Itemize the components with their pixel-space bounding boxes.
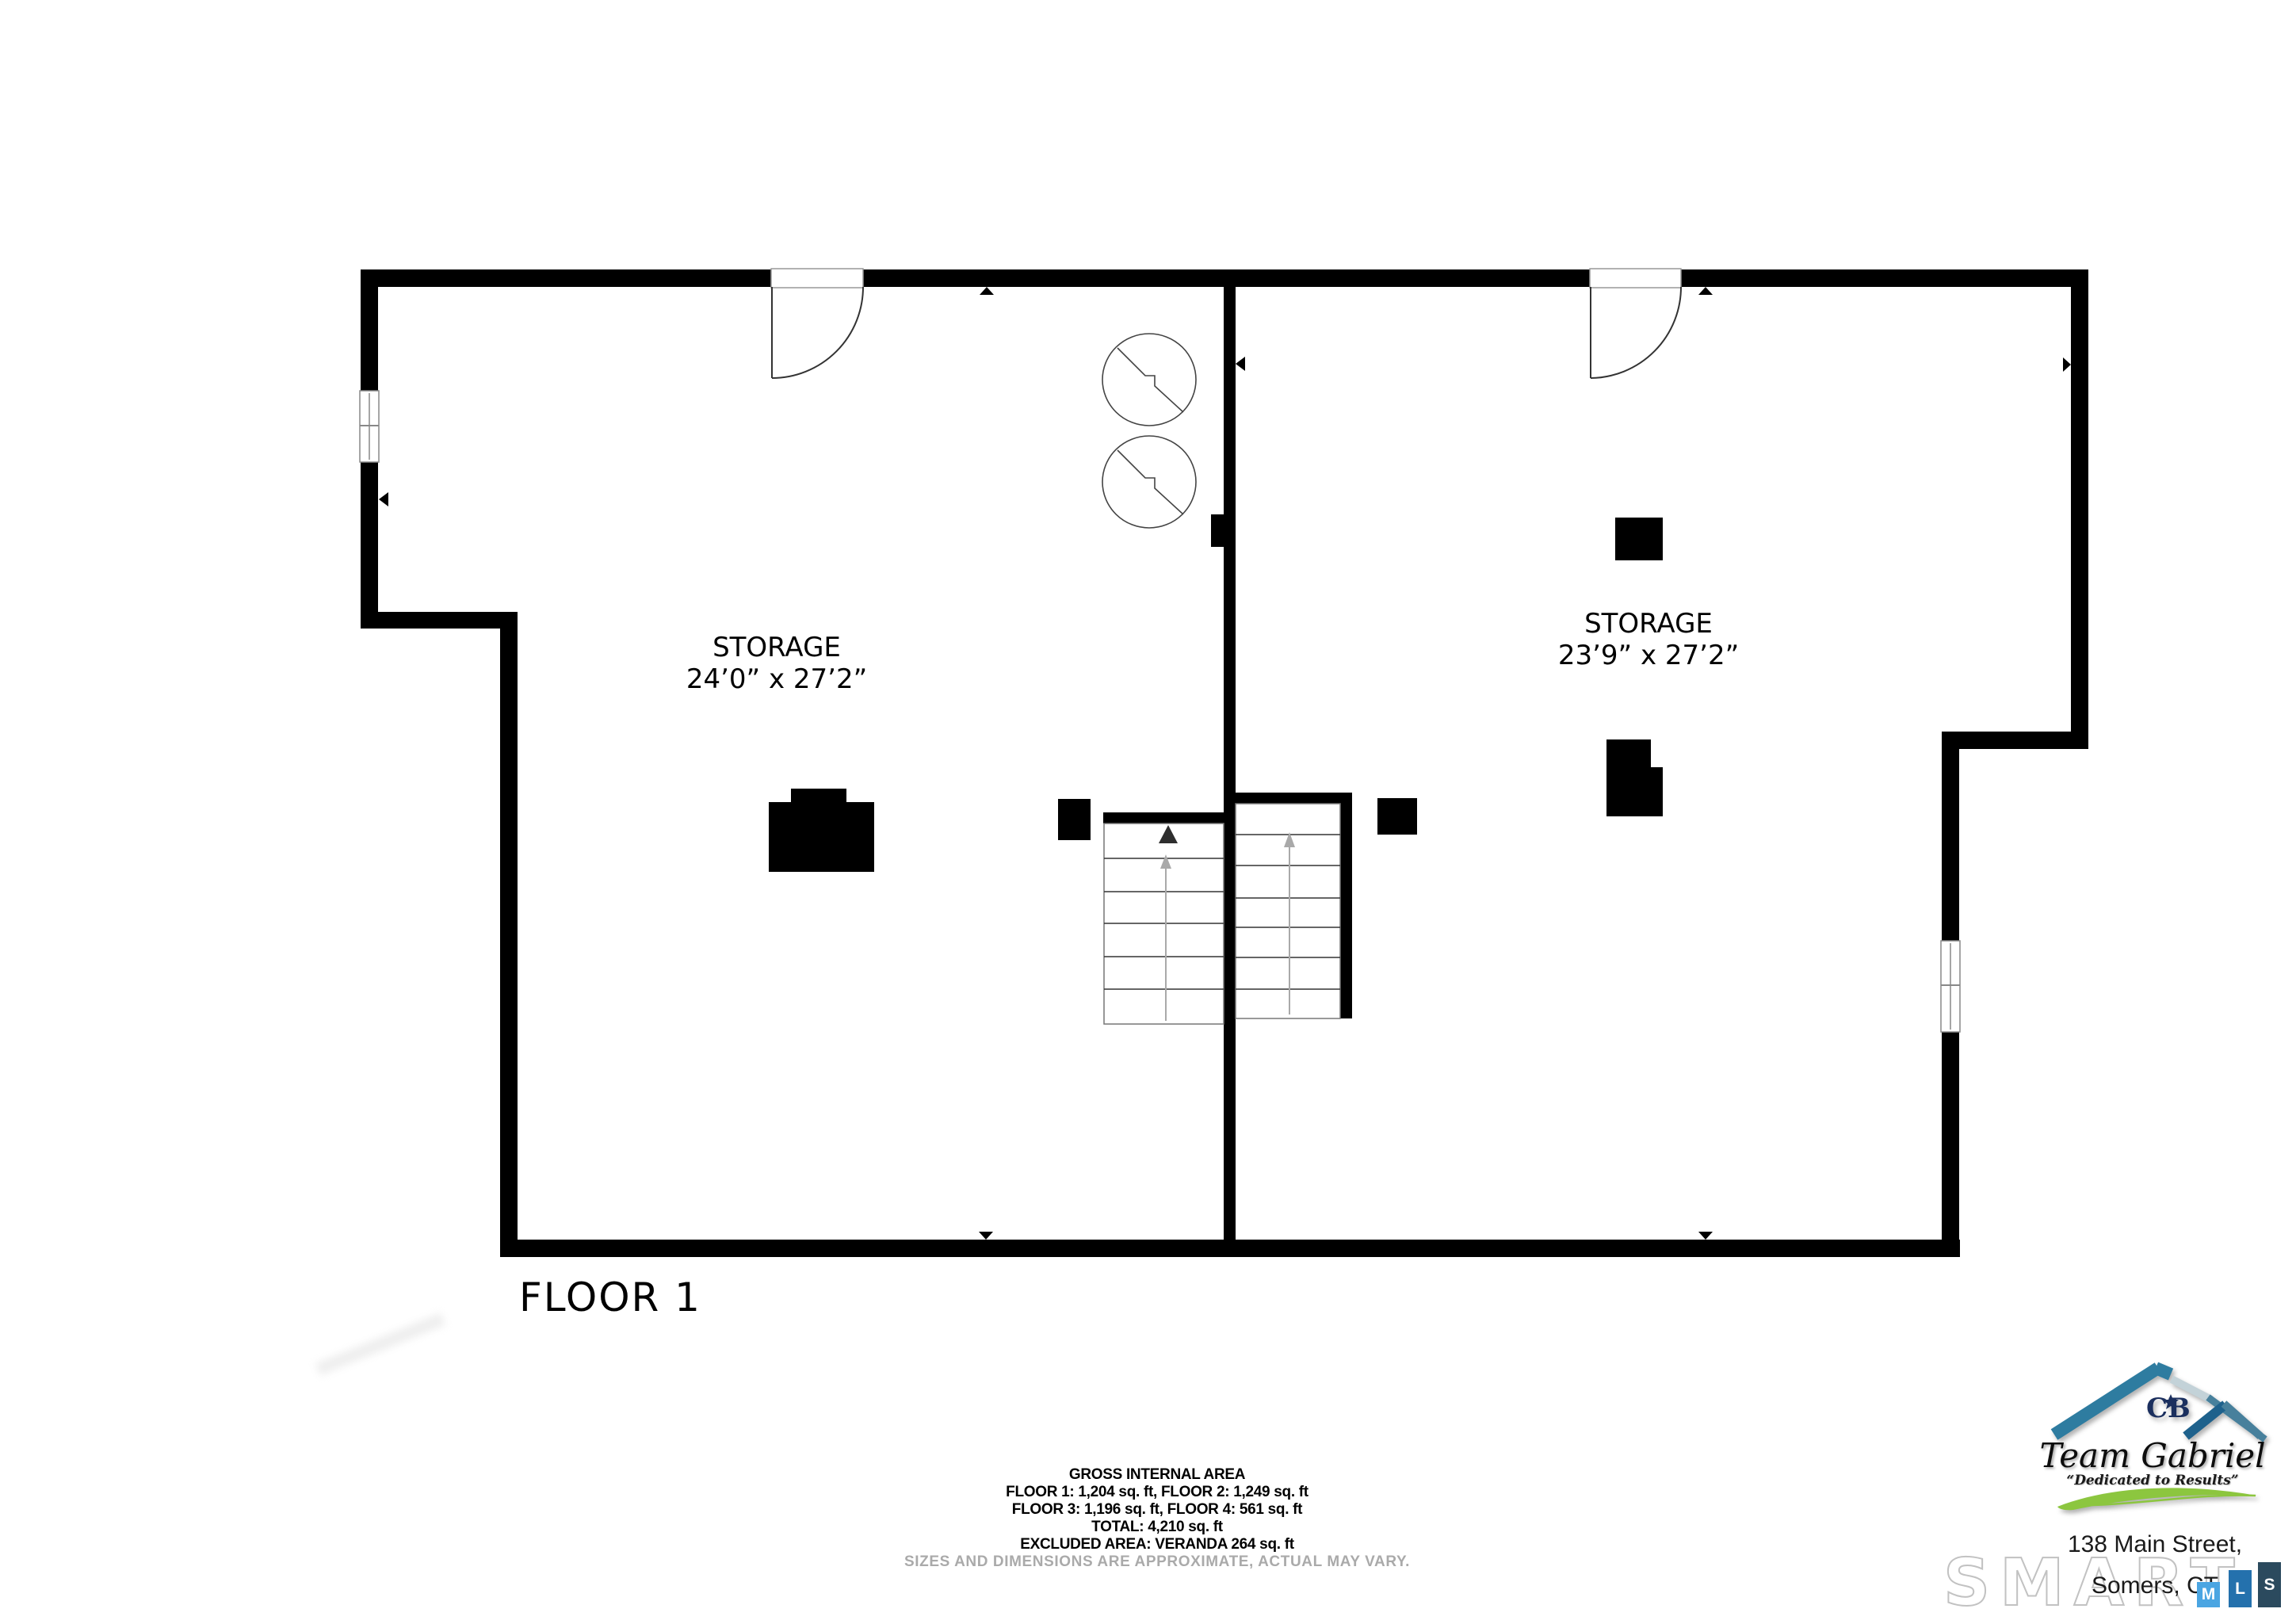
address-line-1: 138 Main Street, [2068, 1531, 2242, 1558]
swoosh-icon [2057, 1488, 2257, 1510]
cb-monogram-text: CB [2146, 1393, 2191, 1424]
mls-s-letter: S [2264, 1576, 2275, 1595]
team-gabriel-logo: CB [2054, 1368, 2265, 1510]
mls-m-badge: M [2197, 1582, 2220, 1607]
logo-canvas: CB [0, 0, 2296, 1624]
floorplan-page: STORAGE 24’0” x 27’2” STORAGE 23’9” x 27… [0, 0, 2296, 1624]
cb-monogram-icon: CB [2146, 1393, 2191, 1424]
mls-l-badge: L [2229, 1570, 2252, 1607]
mls-s-badge: S [2258, 1562, 2281, 1607]
mls-m-letter: M [2202, 1585, 2216, 1604]
mls-l-letter: L [2235, 1580, 2245, 1599]
